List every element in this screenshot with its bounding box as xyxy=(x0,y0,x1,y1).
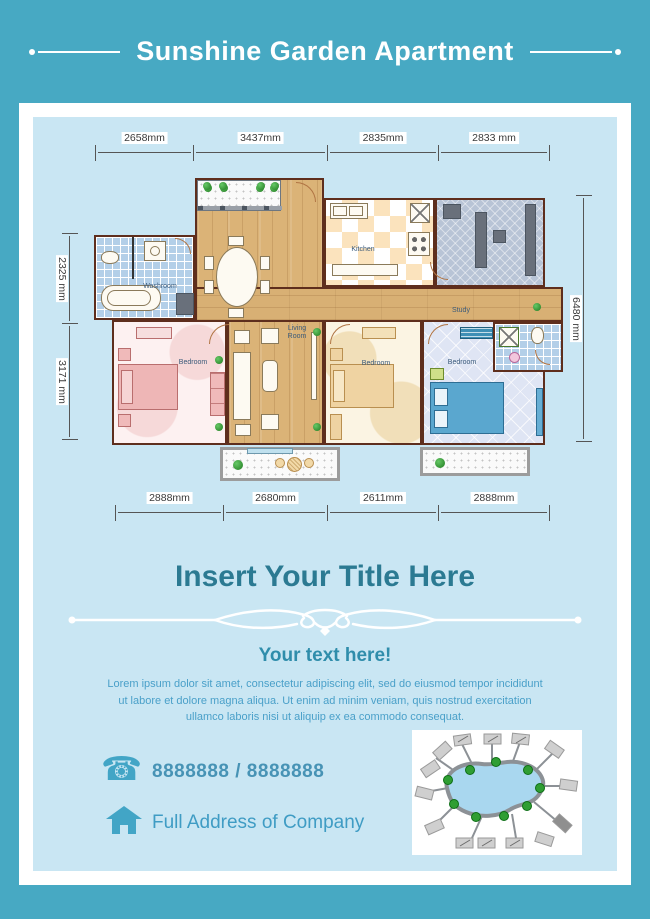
banner-title: Sunshine Garden Apartment xyxy=(136,36,514,67)
dining-chair xyxy=(228,308,244,318)
sofa xyxy=(233,352,251,420)
dining-chair xyxy=(228,236,244,246)
dining-chair xyxy=(204,280,214,294)
dim-label-bottom-1: 2888mm xyxy=(146,492,193,504)
pillow xyxy=(434,388,448,406)
ensuite-door-arc xyxy=(535,350,550,365)
pillow xyxy=(434,410,448,428)
desk-chair xyxy=(493,230,506,243)
home-icon xyxy=(106,806,142,836)
dim-label-top-2: 3437mm xyxy=(237,132,284,144)
study-cabinet xyxy=(443,204,461,219)
nightstand xyxy=(118,414,131,427)
sink-bowl xyxy=(349,206,363,216)
room-label-washroom: Washroom xyxy=(143,283,177,291)
balcony-bottom-right xyxy=(420,447,530,476)
phone-numbers: 8888888 / 8888888 xyxy=(152,761,324,783)
dim-label-left-2: 3171 mm xyxy=(56,358,68,406)
coffee-table xyxy=(262,360,278,392)
tv-stand xyxy=(311,332,317,400)
kitchen xyxy=(324,198,435,287)
poster: Sunshine Garden Apartment 2658mm 3437mm … xyxy=(0,0,650,919)
plant-icon xyxy=(203,182,211,190)
dining-chair xyxy=(260,256,270,270)
plant-icon xyxy=(313,423,321,431)
dimension-top: 2658mm 3437mm 2835mm 2833 mm xyxy=(95,145,550,161)
shower xyxy=(499,327,519,347)
balcony-top-railing xyxy=(198,206,281,210)
plant-icon xyxy=(215,423,223,431)
dim-label-bottom-3: 2611mm xyxy=(360,492,406,504)
dim-label-bottom-4: 2888mm xyxy=(471,492,518,504)
nightstand xyxy=(118,348,131,361)
armchair xyxy=(235,424,251,436)
ensuite-sink xyxy=(509,352,520,363)
armchair xyxy=(261,328,279,344)
sink-bowl xyxy=(333,206,347,216)
banner-rule-left-icon xyxy=(38,51,120,53)
dining-chair xyxy=(260,280,270,294)
phone-icon: ☎ xyxy=(101,752,142,785)
plant-icon xyxy=(219,182,227,190)
stove xyxy=(408,232,430,256)
plant-icon xyxy=(233,460,243,470)
banner-rule-right-icon xyxy=(530,51,612,53)
toilet xyxy=(531,327,544,344)
dim-label-top-3: 2835mm xyxy=(360,132,407,144)
armchair xyxy=(234,330,250,344)
ac-unit xyxy=(460,327,493,339)
window-curtain xyxy=(536,388,543,436)
section-subtitle: Your text here! xyxy=(0,645,650,667)
living-room xyxy=(227,320,324,445)
dimension-right: 6480 mm xyxy=(576,195,592,442)
wardrobe xyxy=(210,372,225,416)
room-label-bedroom-middle: Bedroom xyxy=(362,360,390,368)
sink-basin xyxy=(150,246,160,256)
washroom-partition xyxy=(132,237,134,279)
site-map xyxy=(412,730,582,855)
bathtub-basin xyxy=(107,290,151,306)
study-desk xyxy=(475,212,487,268)
plant-icon xyxy=(533,303,541,311)
room-label-living-room: Living Room xyxy=(288,325,307,341)
room-label-study: Study xyxy=(452,307,470,315)
rug xyxy=(430,368,444,380)
plant-icon xyxy=(435,458,445,468)
dim-label-top-1: 2658mm xyxy=(121,132,168,144)
dimension-bottom: 2888mm 2680mm 2611mm 2888mm xyxy=(115,505,550,521)
company-address: Full Address of Company xyxy=(152,812,364,834)
window-sill xyxy=(247,448,293,454)
body-paragraph: Lorem ipsum dolor sit amet, consectetur … xyxy=(105,676,545,726)
dim-label-bottom-2: 2680mm xyxy=(252,492,299,504)
study-shelf xyxy=(525,204,536,276)
pillow xyxy=(121,370,133,404)
dimension-left: 2325 mm 3171 mm xyxy=(62,233,78,440)
pillow xyxy=(333,370,345,402)
room-label-kitchen: Kitchen xyxy=(351,246,374,254)
patio-chair xyxy=(304,458,314,468)
dresser xyxy=(362,327,396,339)
dim-label-left-1: 2325 mm xyxy=(56,255,68,303)
kitchen-counter xyxy=(332,264,398,276)
banner: Sunshine Garden Apartment xyxy=(0,0,650,103)
dim-label-right-1: 6480 mm xyxy=(570,295,582,343)
dining-table xyxy=(216,247,258,307)
corner-cabinet xyxy=(410,203,430,223)
toilet xyxy=(101,251,119,264)
dining-chair xyxy=(204,256,214,270)
plant-icon xyxy=(257,182,265,190)
plant-icon xyxy=(313,328,321,336)
plant-icon xyxy=(271,182,279,190)
nightstand xyxy=(330,348,343,361)
washer xyxy=(176,293,194,315)
room-label-bedroom-right: Bedroom xyxy=(448,359,476,367)
study xyxy=(435,198,545,287)
site-map-illustration xyxy=(412,730,582,855)
patio-chair xyxy=(275,458,285,468)
plant-icon xyxy=(215,356,223,364)
armchair xyxy=(261,414,279,430)
dim-label-top-4: 2833 mm xyxy=(469,132,519,144)
balcony-bottom-left xyxy=(220,447,340,481)
cabinet xyxy=(330,414,342,440)
room-label-bedroom-left: Bedroom xyxy=(179,359,207,367)
ensuite-bathroom xyxy=(493,322,563,372)
flourish-divider-icon xyxy=(65,603,585,637)
page-title: Insert Your Title Here xyxy=(0,560,650,594)
patio-table xyxy=(287,457,302,472)
dresser xyxy=(136,327,172,339)
